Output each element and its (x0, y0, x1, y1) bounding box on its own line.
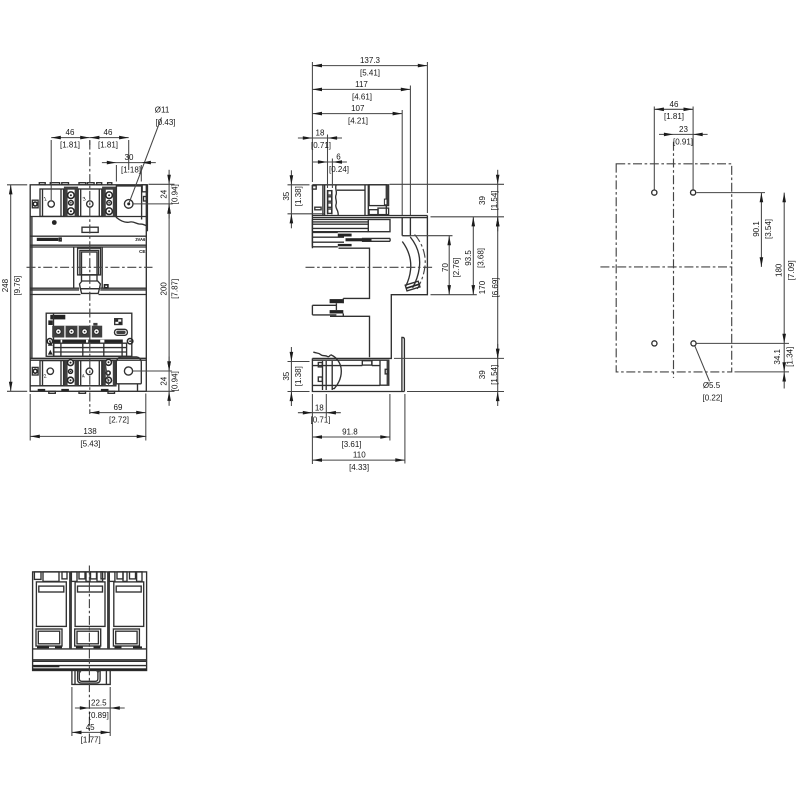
svg-text:[0.71]: [0.71] (311, 141, 331, 150)
svg-text:[5.41]: [5.41] (360, 69, 380, 78)
svg-text:200: 200 (160, 282, 169, 296)
svg-text:[0.89]: [0.89] (89, 711, 109, 720)
svg-text:[1.54]: [1.54] (490, 190, 499, 210)
svg-text:180: 180 (775, 263, 784, 277)
svg-text:90.1: 90.1 (752, 221, 761, 237)
svg-text:Ø5.5: Ø5.5 (703, 381, 721, 390)
svg-text:39: 39 (478, 196, 487, 205)
svg-text:[1.81]: [1.81] (98, 141, 118, 150)
svg-text:[3.61]: [3.61] (341, 440, 361, 449)
svg-text:[1.38]: [1.38] (294, 366, 303, 386)
svg-text:[9.76]: [9.76] (13, 276, 22, 296)
svg-text:110: 110 (353, 451, 366, 460)
svg-text:93.5: 93.5 (464, 250, 473, 266)
svg-text:[1.81]: [1.81] (60, 141, 80, 150)
svg-text:35: 35 (282, 191, 291, 200)
svg-text:3: 3 (82, 196, 86, 203)
svg-text:138: 138 (83, 427, 97, 436)
svg-text:[1.18]: [1.18] (121, 166, 141, 175)
svg-text:3VA6: 3VA6 (135, 237, 146, 242)
svg-text:70: 70 (441, 263, 450, 272)
svg-text:[2.76]: [2.76] (452, 257, 461, 277)
svg-text:CE: CE (139, 249, 145, 254)
svg-text:91.8: 91.8 (342, 428, 358, 437)
svg-text:[0.43]: [0.43] (155, 118, 175, 127)
svg-text:[3.68]: [3.68] (476, 248, 485, 268)
svg-text:[0.94]: [0.94] (171, 184, 180, 204)
svg-text:[6.69]: [6.69] (491, 277, 500, 297)
svg-text:24: 24 (160, 376, 169, 385)
svg-text:[7.87]: [7.87] (171, 279, 180, 299)
svg-text:6: 6 (336, 153, 341, 162)
svg-text:[0.94]: [0.94] (171, 371, 180, 391)
svg-text:24: 24 (160, 189, 169, 198)
svg-text:117: 117 (355, 80, 368, 89)
svg-text:[0.22]: [0.22] (702, 394, 722, 403)
svg-text:46: 46 (670, 100, 679, 109)
svg-text:[0.24]: [0.24] (329, 165, 349, 174)
svg-text:4: 4 (81, 374, 85, 381)
svg-text:170: 170 (478, 280, 487, 294)
svg-text:34.1: 34.1 (773, 348, 782, 364)
svg-text:[4.21]: [4.21] (348, 117, 368, 126)
svg-text:[0.91]: [0.91] (673, 137, 693, 146)
svg-text:18: 18 (316, 129, 325, 138)
svg-text:[3.54]: [3.54] (764, 219, 773, 239)
svg-text:107: 107 (351, 104, 365, 113)
svg-text:[2.72]: [2.72] (109, 416, 129, 425)
svg-text:39: 39 (478, 370, 487, 379)
svg-text:[0.71]: [0.71] (310, 416, 330, 425)
svg-text:69: 69 (114, 403, 123, 412)
svg-text:Ø11: Ø11 (155, 105, 170, 114)
svg-text:22.5: 22.5 (91, 699, 107, 708)
svg-text:[1.38]: [1.38] (294, 186, 303, 206)
svg-text:45: 45 (86, 723, 95, 732)
svg-text:[7.09]: [7.09] (787, 260, 796, 280)
svg-text:[1.54]: [1.54] (490, 365, 499, 385)
svg-text:2: 2 (43, 374, 47, 381)
svg-text:[4.33]: [4.33] (349, 463, 369, 472)
svg-text:30: 30 (125, 153, 134, 162)
svg-text:46: 46 (104, 128, 113, 137)
svg-text:35: 35 (282, 371, 291, 380)
svg-text:46: 46 (66, 128, 75, 137)
svg-text:[1.77]: [1.77] (81, 735, 101, 744)
svg-text:18: 18 (315, 403, 324, 412)
svg-text:23: 23 (679, 125, 688, 134)
svg-text:248: 248 (1, 278, 10, 292)
svg-text:[5.43]: [5.43] (80, 439, 100, 448)
svg-text:137.3: 137.3 (360, 56, 381, 65)
svg-text:[1.81]: [1.81] (664, 112, 684, 121)
svg-text:[4.61]: [4.61] (352, 92, 372, 101)
svg-text:1: 1 (43, 196, 47, 203)
svg-text:[1.34]: [1.34] (786, 347, 795, 367)
